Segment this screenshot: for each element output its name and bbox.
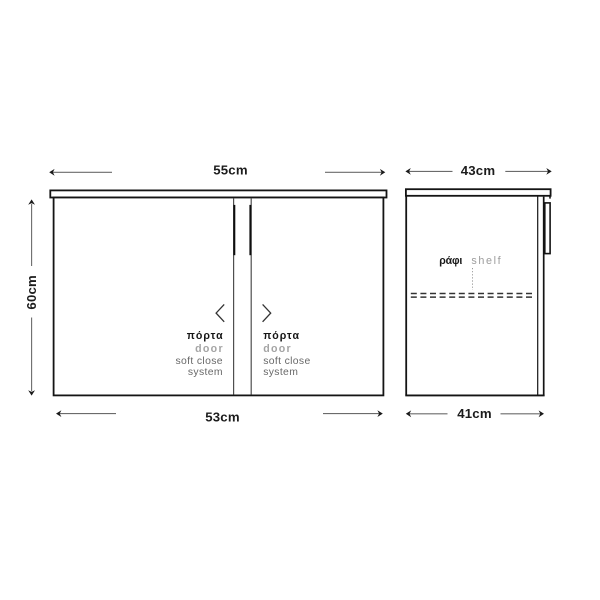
svg-text:shelf: shelf [471, 255, 502, 267]
svg-text:door: door [195, 343, 224, 355]
svg-text:55cm: 55cm [213, 163, 248, 178]
svg-text:53cm: 53cm [205, 409, 240, 424]
svg-text:πόρτα: πόρτα [263, 330, 300, 342]
svg-text:πόρτα: πόρτα [187, 330, 224, 342]
svg-text:ράφι: ράφι [439, 255, 462, 267]
svg-text:system: system [263, 367, 298, 378]
svg-text:soft close: soft close [175, 356, 222, 367]
svg-text:43cm: 43cm [461, 163, 496, 178]
svg-text:door: door [263, 343, 292, 355]
svg-text:41cm: 41cm [457, 406, 492, 421]
svg-text:60cm: 60cm [24, 275, 39, 310]
svg-text:system: system [188, 367, 223, 378]
svg-text:soft close: soft close [263, 356, 310, 367]
